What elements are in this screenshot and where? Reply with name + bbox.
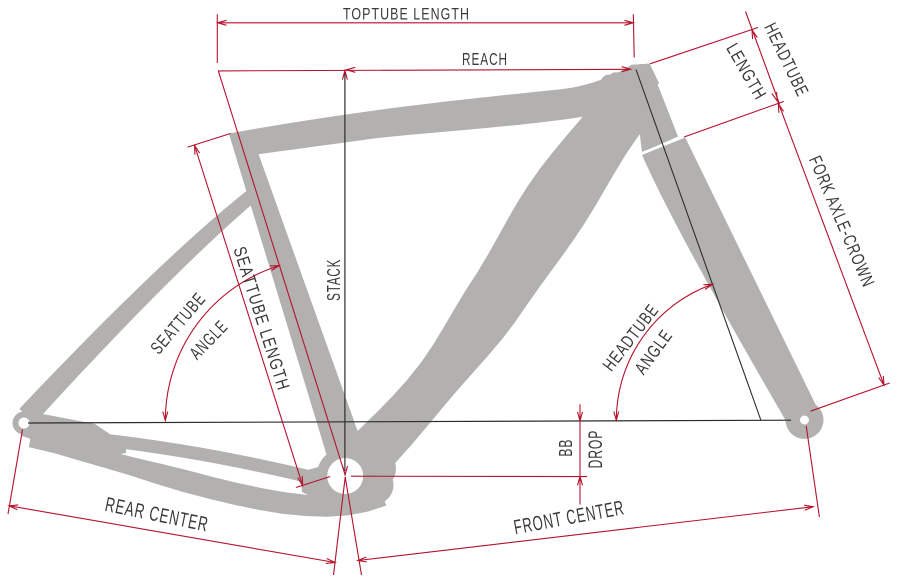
svg-text:REACH: REACH bbox=[462, 49, 508, 69]
svg-text:STACK: STACK bbox=[324, 259, 344, 301]
svg-text:LENGTH: LENGTH bbox=[722, 40, 770, 104]
svg-text:BB: BB bbox=[556, 439, 576, 457]
svg-text:REAR CENTER: REAR CENTER bbox=[103, 493, 210, 536]
svg-text:FORK AXLE-CROWN: FORK AXLE-CROWN bbox=[805, 153, 879, 291]
svg-text:ANGLE: ANGLE bbox=[186, 316, 232, 363]
svg-text:TOPTUBE LENGTH: TOPTUBE LENGTH bbox=[343, 6, 470, 24]
svg-text:DROP: DROP bbox=[585, 430, 607, 469]
svg-text:FRONT CENTER: FRONT CENTER bbox=[512, 496, 626, 539]
